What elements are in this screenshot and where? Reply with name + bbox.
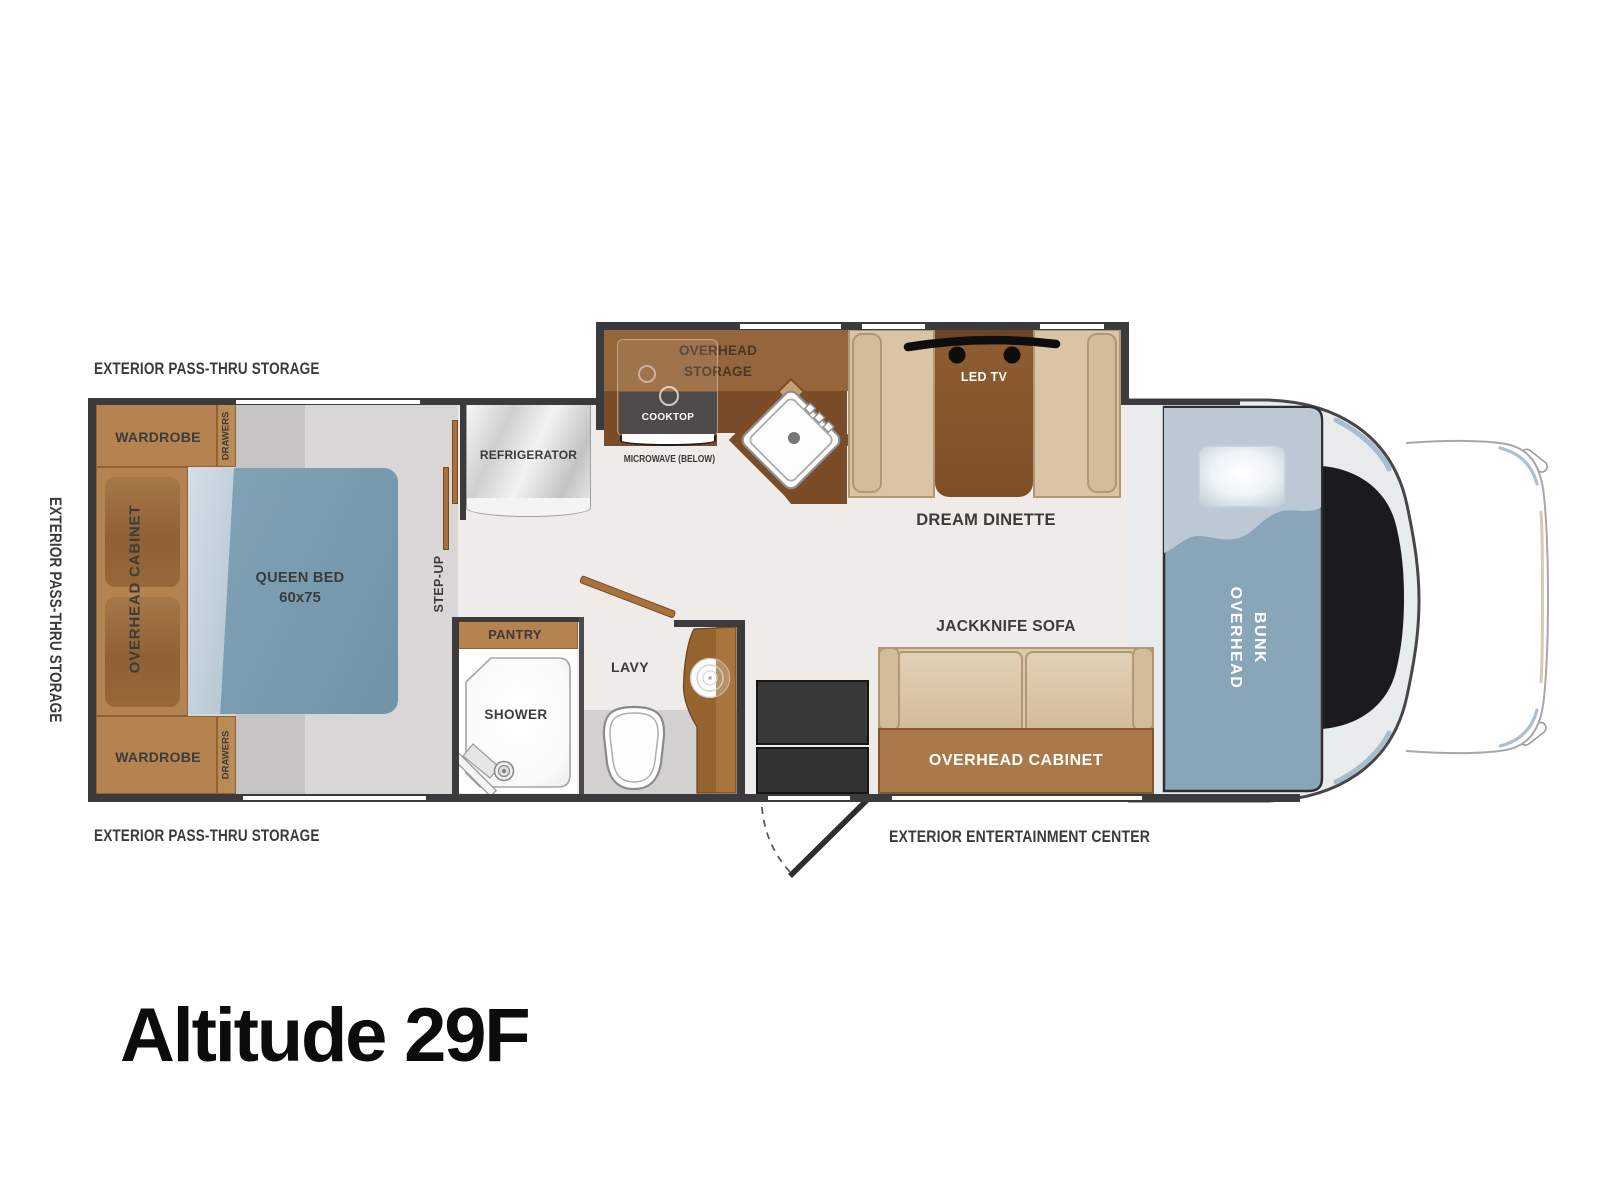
svg-text:OVERHEAD: OVERHEAD [1227,587,1244,690]
svg-text:BUNK: BUNK [1251,612,1268,664]
